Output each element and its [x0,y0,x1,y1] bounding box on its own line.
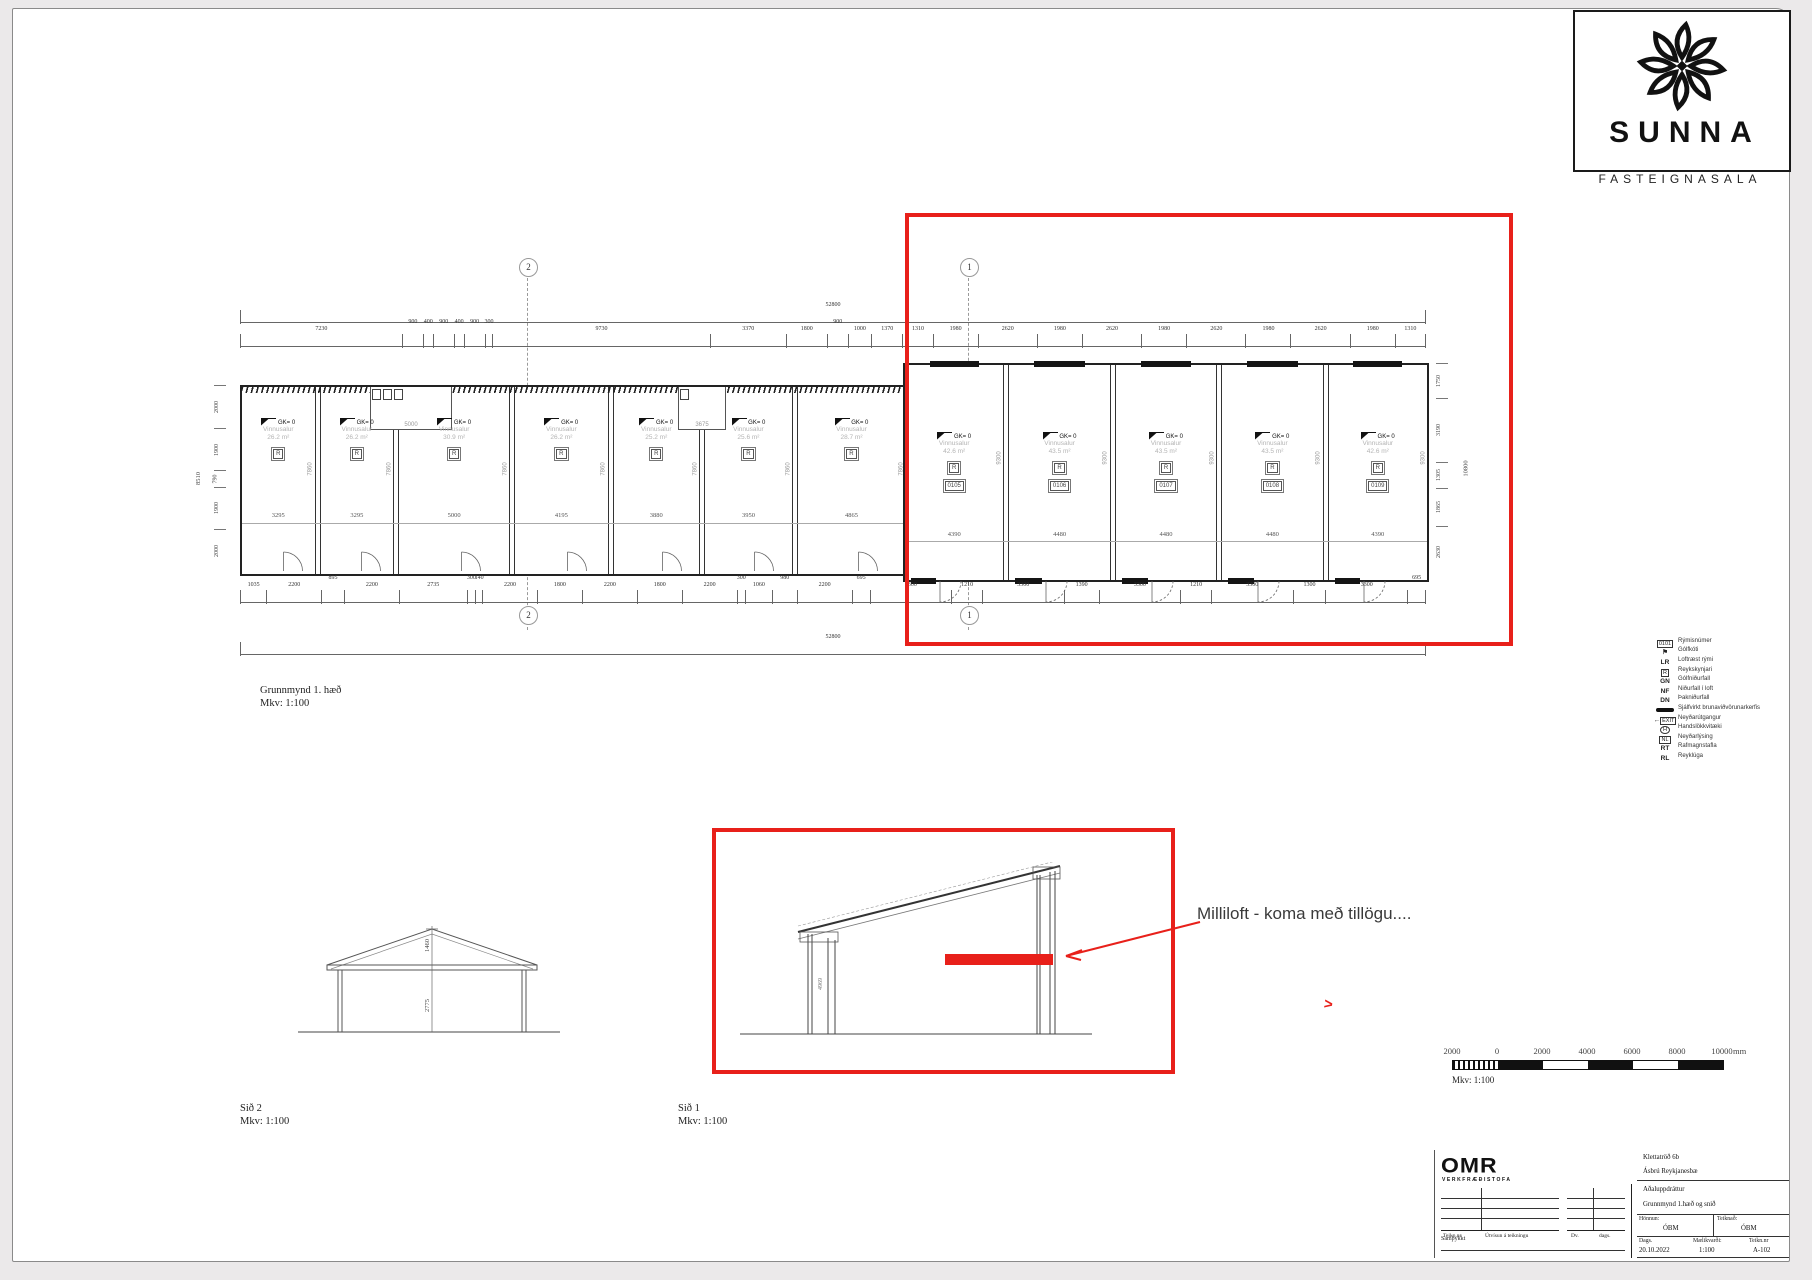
room-unit: GK= 0Vinnusalur25.6 m²R39507860 [705,387,792,574]
section-2-title: Sið 2 Mkv: 1:100 [240,1102,289,1128]
legend-label: Þakniðurfall [1678,695,1709,701]
room-area: 26.2 m² [242,434,315,442]
scale-label: Mælikvarði: [1693,1238,1722,1244]
dimension-segment: 1060 [745,590,772,604]
door-arc-icon [360,551,382,572]
scale-value: 1:100 [1699,1247,1714,1254]
document-type: Aðaluppdráttur [1643,1186,1685,1193]
room-depth-dim: 7860 [502,462,508,475]
level-flag-icon [544,417,559,426]
s2-roof-dim: 1460 [424,939,431,952]
legend-label: Gólfniðurfall [1678,676,1710,682]
dimension-segment: 2200 [582,590,637,604]
room-unit: GK= 0Vinnusalur30.9 m²R50007860 [399,387,509,574]
dimension-segment: 140 [475,590,482,604]
project-location: Ásbrú Reykjanesbæ [1643,1168,1698,1175]
firm-logo: OMR [1441,1153,1498,1178]
dimension-segment: 300 [737,590,745,604]
logo-subtitle: FASTEIGNASALA [1573,172,1787,186]
dimension-segment: 1800 [786,334,827,348]
floor-level-mark: GK= 0 [705,387,792,426]
room-name: Vinnusalur [321,426,394,434]
legend-label: Reyklúga [1678,753,1703,759]
room-unit: GK= 0Vinnusalur25.2 m²R38807860 [614,387,699,574]
floor-level-mark: GK= 0 [321,387,394,426]
level-flag-icon [437,417,452,426]
drawn-label: Teiknað: [1717,1216,1737,1222]
level-flag-icon [340,417,355,426]
room-area: 26.2 m² [321,434,394,442]
door-arc-icon [282,551,304,572]
number-value: A-102 [1753,1247,1770,1254]
s1-wall-dim: 4969 [818,978,824,990]
scale-bar-ticks: 20000200040006000800010000 [1452,1046,1752,1058]
door-arc-icon [661,551,683,572]
dimension-segment: 900 [464,334,485,348]
scale-tick-label: 6000 [1624,1046,1641,1056]
dimension-segment: 900 [402,334,423,348]
section-1-drawing: 4969 [740,862,1092,1038]
scale-segment [1453,1061,1498,1069]
red-highlight-plan [905,213,1513,646]
logo-box: SUNNA [1573,10,1791,172]
room-depth-dim: 7860 [308,462,314,475]
scale-bar-unit: mm [1733,1046,1746,1056]
room-name: Vinnusalur [614,426,699,434]
s2-wall-dim: 2775 [424,999,431,1012]
plan-title: Grunnmynd 1. hæð Mkv: 1:100 [260,684,341,710]
level-flag-icon [639,417,654,426]
dimension-segment: 7230 [240,334,402,348]
dimension-segment: 2000 [214,529,226,572]
room-width-dim: 3295 [242,512,315,519]
room-name: Vinnusalur [399,426,509,434]
room-unit: GK= 0Vinnusalur28.7 m²R48657860 [798,387,905,574]
logo-name: SUNNA [1575,116,1789,150]
dimension-segment: 2735 [399,590,467,604]
scale-bar-graphic [1452,1060,1724,1070]
design-value: ÓBM [1663,1225,1679,1232]
dimension-segment: 900 [827,334,848,348]
level-flag-icon [261,417,276,426]
design-label: Hönnun: [1639,1216,1659,1222]
door-arc-icon [857,551,879,572]
dimension-segment: 1035 [240,590,266,604]
dimension-segment: 980 [772,590,797,604]
plan-scale-text: Mkv: 1:100 [260,697,341,710]
scale-tick-label: 8000 [1669,1046,1686,1056]
legend-label: Gólfkóti [1678,647,1698,653]
grid-bubble-2-top: 2 [519,258,538,277]
level-flag-icon [732,417,747,426]
room-unit: GK= 0Vinnusalur26.2 m²R32957860 [242,387,315,574]
room-name: Vinnusalur [705,426,792,434]
section-1-title: Sið 1 Mkv: 1:100 [678,1102,727,1128]
revision-date-table: Dv. dags. [1567,1188,1625,1231]
left-overall-dim: 8510 [195,472,202,485]
sheet-title: Grunnmynd 1.hæð og snið [1643,1201,1716,1208]
door-arc-icon [460,551,482,572]
section-1-scale: Mkv: 1:100 [678,1115,727,1128]
legend-label: Rýmisnúmer [1678,638,1712,644]
milliloft-red-bar [945,954,1053,965]
scale-tick-label: 10000 [1711,1046,1732,1056]
door-arc-icon [566,551,588,572]
floor-level-mark: GK= 0 [515,387,607,426]
scale-segment [1633,1061,1678,1069]
room-name: Vinnusalur [515,426,607,434]
scale-tick-label: 0 [1495,1046,1499,1056]
room-width-dim: 3295 [321,512,394,519]
project-name: Klettatröð 6b [1643,1154,1679,1161]
scale-tick-label: 2000 [1534,1046,1551,1056]
room-unit: GK= 0Vinnusalur26.2 m²R32957860 [321,387,394,574]
dimension-segment: 2200 [682,590,737,604]
room-width-dim: 4865 [798,512,905,519]
dimension-segment: 2200 [482,590,537,604]
floor-level-mark: GK= 0 [242,387,315,426]
legend-label: Niðurfall í loft [1678,686,1713,692]
legend-label: Rafmagnstafla [1678,743,1717,749]
legend-text-icon: RL [1652,747,1678,765]
number-label: Teikn.nr [1749,1238,1768,1244]
legend-label: Handslökkvitæki [1678,724,1722,730]
smoke-detector-icon: R [352,449,362,459]
scale-bar: 20000200040006000800010000 mm Mkv: 1:100 [1452,1046,1752,1096]
dimension-segment: 400 [454,334,464,348]
room-unit: GK= 0Vinnusalur26.2 m²R41957860 [515,387,607,574]
room-area: 25.6 m² [705,434,792,442]
dimension-segment: 2200 [266,590,321,604]
approved-label: Samþykkt [1441,1236,1465,1242]
legend-label: Sjálfvirkt brunaviðvörunarkerfis [1678,705,1760,711]
scale-tick-label: 2000 [1444,1046,1461,1056]
room-width-dim: 5000 [399,512,509,519]
smoke-detector-icon: R [273,449,283,459]
scale-segment [1543,1061,1588,1069]
annotation-arrow [1052,914,1202,966]
dimension-segment: 3370 [710,334,786,348]
room-area: 25.2 m² [614,434,699,442]
dimension-segment: 1900 [214,428,226,469]
scale-bar-label: Mkv: 1:100 [1452,1075,1752,1085]
date-label: Dags. [1639,1238,1652,1244]
firm-subtitle: VERKFRÆÐISTOFA [1442,1177,1512,1183]
dimension-segment: 2000 [214,385,226,428]
section-1-name: Sið 1 [678,1102,727,1115]
dimension-segment: 9730 [492,334,709,348]
room-area: 28.7 m² [798,434,905,442]
title-block: OMR VERKFRÆÐISTOFA Teikn.nr Útvísun á te… [1434,1150,1789,1258]
architectural-drawing-sheet: { "logo": {"name": "SUNNA", "sub": "FAST… [0,0,1812,1280]
smoke-detector-icon: R [651,449,661,459]
scale-tick-label: 4000 [1579,1046,1596,1056]
dimension-segment: 1800 [537,590,582,604]
grid-bubble-2-bottom: 2 [519,606,538,625]
smoke-detector-icon: R [556,449,566,459]
revision-table: Teikn.nr Útvísun á teikningu [1441,1188,1559,1231]
scale-segment [1498,1061,1543,1069]
room-area: 30.9 m² [399,434,509,442]
room-width-dim: 3950 [705,512,792,519]
dimension-segment: 300 [485,334,493,348]
room-area: 26.2 m² [515,434,607,442]
room-depth-dim: 7860 [692,462,698,475]
smoke-detector-icon: R [743,449,753,459]
sunna-flower-icon [1634,18,1730,114]
overall-dim-value: 52800 [826,302,841,308]
left-dimension-stack: 2000190079019002000 [214,385,226,572]
room-depth-dim: 7860 [386,462,392,475]
drawn-value: ÓBM [1741,1225,1757,1232]
smoke-detector-icon: R [846,449,856,459]
dimension-segment: 1370 [871,334,902,348]
col-dv-label: Dv. [1571,1233,1579,1239]
dimension-segment: 790 [214,470,226,488]
room-depth-dim: 7860 [785,462,791,475]
room-name: Vinnusalur [242,426,315,434]
dimension-segment: 400 [423,334,433,348]
room-name: Vinnusalur [798,426,905,434]
door-arc-icon [753,551,775,572]
legend-label: Neyðarlýsing [1678,734,1713,740]
smoke-detector-icon: R [449,449,459,459]
milliloft-annotation: Milliloft - koma með tillögu.... [1197,904,1411,924]
dimension-segment: 1800 [637,590,682,604]
dimension-segment: 1900 [214,487,226,528]
col-dags-label: dags. [1599,1233,1610,1239]
dimension-segment: 900 [433,334,454,348]
scale-segment [1588,1061,1633,1069]
dimension-segment: 2200 [344,590,399,604]
room-depth-dim: 7860 [601,462,607,475]
room-width-dim: 4195 [515,512,607,519]
floor-level-mark: GK= 0 [798,387,905,426]
overall-dim-value: 52800 [826,634,841,640]
legend-label: Reykskynjari [1678,667,1712,673]
title-block-info: Klettatröð 6b Ásbrú Reykjanesbæ Aðaluppd… [1637,1150,1789,1258]
dimension-segment: 300 [467,590,475,604]
room-width-dim: 3880 [614,512,699,519]
dimension-segment: 895 [321,590,344,604]
scale-segment [1678,1061,1723,1069]
level-flag-icon [835,417,850,426]
section-2-scale: Mkv: 1:100 [240,1115,289,1128]
section-2-name: Sið 2 [240,1102,289,1115]
floor-level-mark: GK= 0 [614,387,699,426]
date-value: 20.10.2022 [1639,1247,1670,1254]
plan-title-text: Grunnmynd 1. hæð [260,684,341,697]
dimension-segment: 1000 [848,334,871,348]
legend-row: RLReyklúga [1652,751,1798,761]
dimension-segment: 695 [852,590,870,604]
section-2-drawing: 1460 2775 [298,922,560,1037]
legend-label: Neyðarútgangur [1678,715,1721,721]
building-left-block: 5000 3675 GK= 0Vinnusalur26.2 m²R3295786… [240,385,907,576]
col-utvisun-label: Útvísun á teikningu [1485,1233,1528,1239]
legend-label: Loftræst rými [1678,657,1713,663]
dimension-segment: 2200 [797,590,852,604]
legend: 0101Rýmisnúmer⚑GólfkótiLRLoftræst rýmiRR… [1652,636,1798,761]
floor-level-mark: GK= 0 [399,387,509,426]
